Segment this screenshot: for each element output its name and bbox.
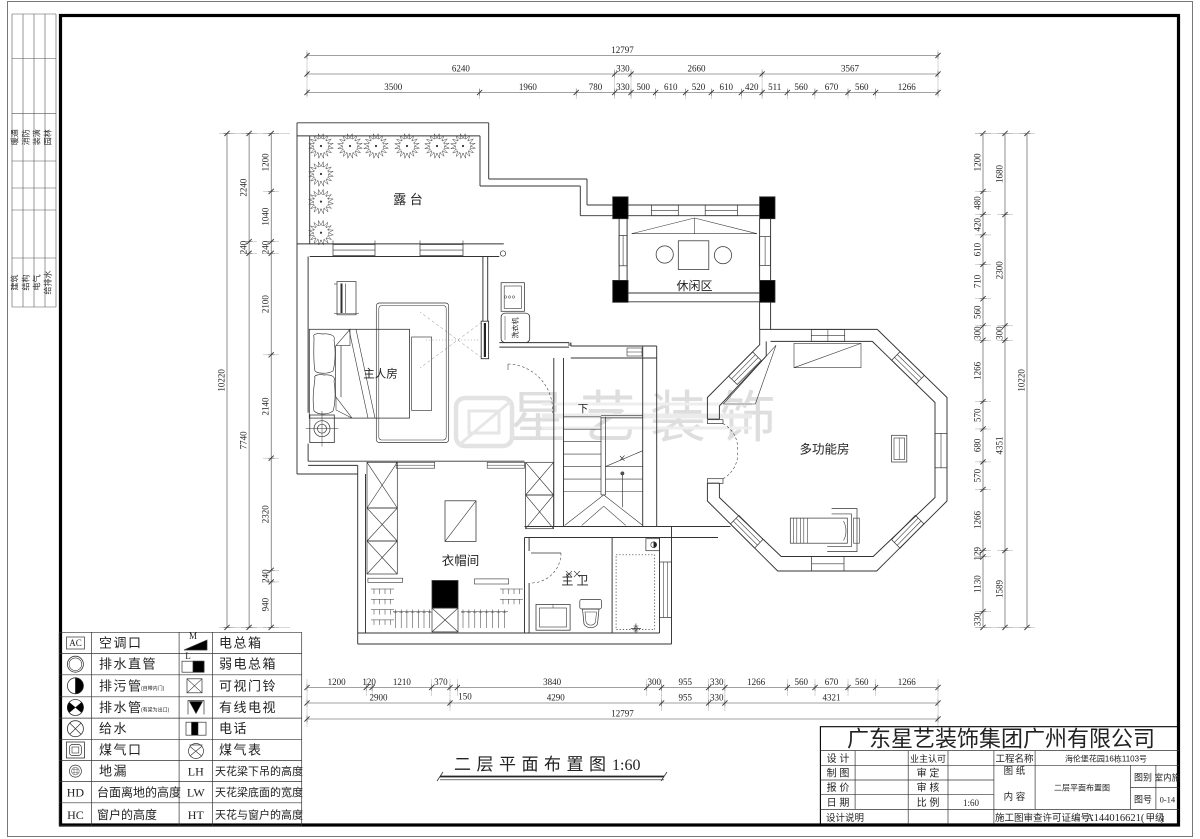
- svg-text:1200: 1200: [972, 153, 982, 172]
- svg-text:4321: 4321: [823, 692, 841, 702]
- svg-text:施工图审查许可证编号：: 施工图审查许可证编号：: [995, 812, 1100, 824]
- svg-text:1:60: 1:60: [963, 798, 980, 808]
- svg-text:420: 420: [745, 82, 759, 92]
- svg-text:955: 955: [678, 677, 692, 687]
- svg-text:图 纸: 图 纸: [1004, 765, 1026, 777]
- svg-text:1040: 1040: [261, 207, 271, 226]
- svg-text:): ): [1161, 813, 1165, 824]
- svg-text:1266: 1266: [898, 82, 917, 92]
- svg-text:1680: 1680: [994, 165, 1004, 184]
- svg-text:洗衣机: 洗衣机: [511, 318, 520, 339]
- svg-text:二层平面布置图: 二层平面布置图: [1054, 783, 1110, 793]
- svg-text:300: 300: [994, 326, 1004, 340]
- svg-text:排水直管: 排水直管: [99, 657, 157, 672]
- svg-text:排污管: 排污管: [99, 678, 143, 693]
- svg-text:HT: HT: [188, 808, 205, 822]
- svg-text:AC: AC: [69, 638, 82, 648]
- svg-text:审 定: 审 定: [917, 767, 940, 780]
- svg-text:330: 330: [616, 63, 630, 73]
- svg-text:2100: 2100: [261, 295, 271, 314]
- svg-text:HC: HC: [67, 808, 84, 822]
- svg-text:结构: 结构: [21, 275, 31, 291]
- svg-text:480: 480: [972, 196, 982, 210]
- svg-text:台面离地的高度: 台面离地的高度: [97, 785, 181, 800]
- svg-text:设 计: 设 计: [827, 752, 850, 765]
- svg-text:955: 955: [678, 692, 692, 702]
- svg-text:2660: 2660: [688, 63, 707, 73]
- svg-text:940: 940: [261, 597, 271, 611]
- svg-text:1266: 1266: [747, 677, 766, 687]
- svg-text:560: 560: [855, 82, 869, 92]
- svg-text:室内施: 室内施: [1155, 773, 1181, 783]
- svg-text:主 卫: 主 卫: [561, 574, 588, 588]
- svg-text:日 期: 日 期: [827, 797, 850, 809]
- svg-text:消防: 消防: [21, 129, 31, 145]
- svg-text:图别: 图别: [1134, 773, 1152, 783]
- svg-text:HD: HD: [67, 786, 85, 800]
- svg-text:12797: 12797: [611, 45, 634, 55]
- svg-text:审 核: 审 核: [917, 781, 940, 794]
- svg-text:海伦堡花园16栋1103号: 海伦堡花园16栋1103号: [1065, 754, 1147, 764]
- svg-text:建筑: 建筑: [10, 275, 20, 291]
- svg-text:4290: 4290: [547, 692, 566, 702]
- svg-text:多功能房: 多功能房: [799, 442, 849, 457]
- svg-text:弱电总箱: 弱电总箱: [219, 657, 277, 672]
- svg-text:2300: 2300: [994, 261, 1004, 280]
- svg-text:1266: 1266: [972, 361, 982, 380]
- svg-text:560: 560: [794, 82, 808, 92]
- svg-text:电话: 电话: [219, 721, 248, 736]
- svg-text:(有梁为出口): (有梁为出口): [141, 707, 170, 714]
- svg-text:500: 500: [637, 82, 651, 92]
- svg-text:610: 610: [972, 242, 982, 256]
- svg-text:129: 129: [972, 546, 982, 560]
- svg-text:300: 300: [647, 677, 661, 687]
- svg-text:420: 420: [972, 218, 982, 232]
- svg-text:A144016621(: A144016621(: [1086, 813, 1145, 824]
- svg-text:2140: 2140: [261, 397, 271, 416]
- svg-text:2900: 2900: [370, 692, 389, 702]
- svg-text:12797: 12797: [611, 708, 634, 718]
- svg-text:560: 560: [794, 677, 808, 687]
- svg-text:1210: 1210: [393, 677, 412, 687]
- svg-text:报 价: 报 价: [827, 781, 850, 794]
- svg-text:1589: 1589: [994, 580, 1004, 599]
- svg-text:560: 560: [972, 305, 982, 319]
- svg-text:1130: 1130: [972, 575, 982, 593]
- svg-text:比 例: 比 例: [917, 796, 940, 809]
- svg-text:520: 520: [692, 82, 706, 92]
- svg-text:0-14: 0-14: [1160, 795, 1176, 805]
- svg-text:空调口: 空调口: [99, 636, 143, 651]
- svg-text:地漏: 地漏: [99, 764, 128, 779]
- svg-text:330: 330: [616, 82, 630, 92]
- svg-text:工程名称: 工程名称: [995, 753, 1034, 765]
- svg-text:窗户的高度: 窗户的高度: [97, 807, 157, 822]
- svg-text:图号: 图号: [1134, 795, 1152, 805]
- svg-text:120: 120: [362, 677, 376, 687]
- svg-text:1200: 1200: [261, 153, 271, 172]
- svg-text:240: 240: [261, 569, 271, 583]
- svg-text:暖通: 暖通: [10, 129, 20, 145]
- svg-text:内 容: 内 容: [1004, 791, 1026, 803]
- svg-text:(自带内门): (自带内门): [141, 685, 165, 692]
- svg-text:1960: 1960: [519, 82, 538, 92]
- svg-text:240: 240: [239, 240, 249, 254]
- svg-text:下: 下: [578, 403, 589, 415]
- svg-text:天花梁底面的宽度: 天花梁底面的宽度: [215, 785, 303, 799]
- svg-text:1266: 1266: [898, 677, 917, 687]
- svg-text:670: 670: [825, 677, 839, 687]
- svg-text:7740: 7740: [239, 431, 249, 450]
- svg-text:330: 330: [710, 692, 724, 702]
- svg-text:制 图: 制 图: [827, 767, 850, 780]
- svg-text:570: 570: [972, 468, 982, 482]
- svg-text:1266: 1266: [972, 511, 982, 530]
- svg-text:装潢: 装潢: [32, 129, 42, 145]
- svg-text:主人房: 主人房: [363, 368, 398, 381]
- svg-text:511: 511: [768, 82, 781, 92]
- svg-text:可视门铃: 可视门铃: [219, 678, 277, 693]
- svg-text:370: 370: [434, 677, 448, 687]
- svg-text:610: 610: [720, 82, 734, 92]
- svg-text:电总箱: 电总箱: [219, 636, 263, 651]
- svg-text:衣帽间: 衣帽间: [442, 553, 480, 568]
- svg-text:560: 560: [855, 677, 869, 687]
- svg-text:610: 610: [664, 82, 678, 92]
- svg-text:煤气表: 煤气表: [219, 743, 263, 758]
- svg-text:570: 570: [972, 408, 982, 422]
- svg-text:业主认可: 业主认可: [910, 753, 946, 764]
- svg-text:10220: 10220: [216, 369, 226, 392]
- svg-text:3840: 3840: [543, 677, 562, 687]
- svg-text:LW: LW: [187, 786, 205, 800]
- svg-text:3500: 3500: [384, 82, 403, 92]
- svg-text:1200: 1200: [328, 677, 347, 687]
- svg-text:天花梁下吊的高度: 天花梁下吊的高度: [215, 764, 303, 778]
- svg-text:LH: LH: [188, 765, 204, 779]
- svg-text:2240: 2240: [239, 178, 249, 197]
- svg-text:M: M: [189, 631, 197, 641]
- svg-text:给水: 给水: [99, 721, 128, 736]
- svg-text:780: 780: [589, 82, 603, 92]
- svg-text:330: 330: [710, 677, 724, 687]
- svg-text:电气: 电气: [32, 275, 42, 291]
- svg-text:有线电视: 有线电视: [219, 700, 277, 715]
- svg-text:煤气口: 煤气口: [99, 743, 143, 758]
- svg-text:给排水: 给排水: [43, 271, 53, 295]
- svg-text:6240: 6240: [452, 63, 471, 73]
- svg-text:二层平面布置图: 二层平面布置图: [454, 755, 612, 774]
- svg-text:1:60: 1:60: [612, 757, 640, 774]
- svg-text:园林: 园林: [43, 129, 53, 145]
- svg-text:2320: 2320: [261, 505, 271, 524]
- svg-text:设计说明: 设计说明: [826, 812, 864, 824]
- svg-text:240: 240: [261, 240, 271, 254]
- svg-text:天花与窗户的高度: 天花与窗户的高度: [215, 807, 303, 821]
- svg-text:L: L: [185, 651, 191, 661]
- svg-text:330: 330: [972, 612, 982, 626]
- svg-text:710: 710: [972, 274, 982, 288]
- svg-text:150: 150: [458, 692, 472, 702]
- svg-text:4351: 4351: [994, 437, 1004, 455]
- svg-text:300: 300: [972, 326, 982, 340]
- svg-text:10220: 10220: [1016, 369, 1026, 392]
- svg-text:670: 670: [825, 82, 839, 92]
- svg-text:排水管: 排水管: [99, 700, 143, 715]
- svg-text:680: 680: [972, 438, 982, 452]
- svg-text:3567: 3567: [841, 63, 860, 73]
- svg-text:广东星艺装饰集团广州有限公司: 广东星艺装饰集团广州有限公司: [847, 727, 1155, 752]
- svg-text:露 台: 露 台: [393, 192, 423, 207]
- svg-text:休闲区: 休闲区: [676, 279, 712, 293]
